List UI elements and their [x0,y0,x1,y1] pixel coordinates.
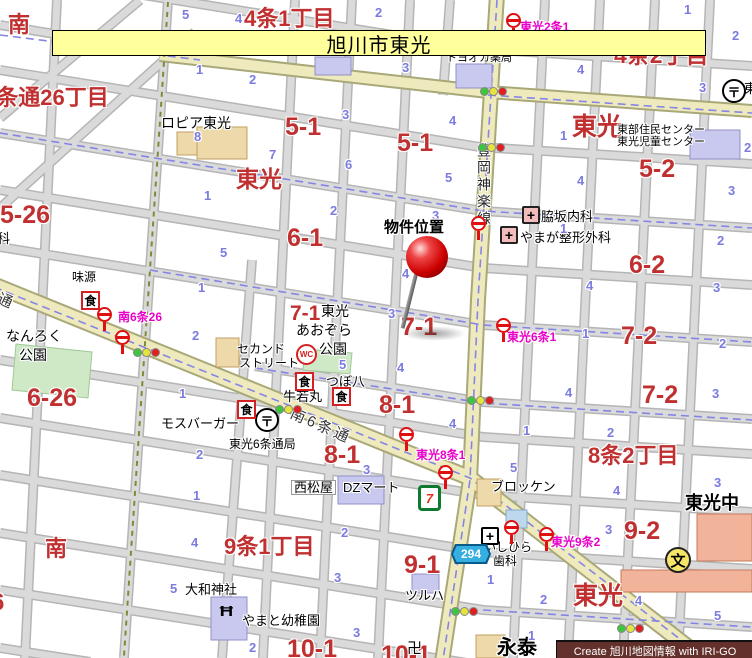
bus-stop-icon [399,427,414,451]
restaurant-icon: 食 [81,291,100,310]
lot-number: 3 [388,307,395,320]
bus-stop-icon [438,465,453,489]
lot-number: 5 [510,461,517,474]
lot-number: 3 [728,184,735,197]
place-label: 西松屋 [291,480,336,495]
route-294-shield: 294 [451,544,491,564]
lot-number: 2 [192,329,199,342]
place-label: 卍 [407,641,422,656]
area-label: 6-1 [287,226,323,251]
area-label: 南 [45,538,67,560]
lot-number: 3 [714,476,721,489]
place-label: モスバーガー [161,417,239,430]
lot-number: 4 [565,386,572,399]
area-label: 9-2 [624,519,660,544]
dental-clinic-icon: + [481,527,499,545]
lot-number: 1 [582,327,589,340]
place-label: 味源 [72,271,96,283]
place-label: 東光 [321,304,349,318]
lot-number: 3 [712,387,719,400]
lot-number: 4 [577,63,584,76]
lot-number: 1 [193,489,200,502]
area-label: 9-1 [404,553,440,578]
lot-number: 3 [713,281,720,294]
place-label: ロピア東光 [161,116,231,130]
lot-number: 1 [487,573,494,586]
lot-number: 1 [204,189,211,202]
post-office-icon: 〒 [255,408,279,432]
lot-number: 1 [560,129,567,142]
lot-number: 5 [182,8,189,21]
bus-stop-icon [97,307,112,331]
lot-number: 8 [194,130,201,143]
area-label: 東光 [236,168,282,191]
lot-number: 6 [345,158,352,171]
bus-stop-icon [471,216,486,240]
lot-number: 1 [684,3,691,16]
lot-number: 5 [339,358,346,371]
place-label: ツルハ [405,589,444,602]
area-label: 東光 [572,115,622,140]
lot-number: 1 [528,629,535,642]
lot-number: 2 [717,234,724,247]
area-label: 南 [8,14,30,36]
traffic-signal-icon [467,396,494,405]
lot-number: 3 [605,523,612,536]
lot-number: 3 [342,108,349,121]
school-icon: 文 [665,547,691,573]
place-label: 大和神社 [185,583,237,596]
area-label: 東光 [573,584,623,609]
lot-number: 4 [235,12,242,25]
lot-number: 2 [330,204,337,217]
place-label: ブロッケン [491,480,556,493]
bus-stop-label: 東光8条1 [416,449,465,461]
bus-stop-icon [504,520,519,544]
place-label: 公園 [19,348,47,362]
lot-number: 5 [170,582,177,595]
lot-number: 4 [397,361,404,374]
area-label: 6 [0,591,4,615]
place-label: 公園 [319,342,347,356]
lot-number: 2 [744,141,751,154]
lot-number: 2 [732,29,739,42]
convenience-store-icon: 7 [418,485,441,511]
lot-number: 1 [523,424,530,437]
marker-label: 物件位置 [384,216,444,237]
area-label: 5-1 [285,115,321,140]
lot-number: 7 [269,148,276,161]
place-label: 東光中 [685,494,739,512]
traffic-signal-icon [617,624,644,633]
area-label: 9条1丁目 [224,536,314,558]
area-label: 4条通26丁目 [0,87,109,109]
lot-number: 4 [449,417,456,430]
map-credit: Create 旭川地図情報 with IRI-GO [556,640,752,658]
bus-stop-label: 南6条26 [118,311,162,323]
place-label: 東光児童センター [617,137,705,148]
traffic-signal-icon [480,87,507,96]
toilet-icon: WC [296,344,317,365]
shrine-icon: Ħ [220,603,234,620]
lot-number: 1 [198,281,205,294]
lot-number: 2 [719,337,726,350]
area-label: 5-26 [0,203,50,228]
area-label: 8-1 [324,443,360,468]
bus-stop-label: 東光6条1 [507,331,556,343]
area-label: 10-1 [287,637,337,658]
lot-number: 2 [607,426,614,439]
restaurant-icon: 食 [237,400,256,419]
lot-number: 4 [613,484,620,497]
area-label: 8条2丁目 [588,445,678,467]
lot-number: 3 [699,81,706,94]
lot-number: 5 [220,246,227,259]
bus-stop-icon [539,527,554,551]
lot-number: 4 [577,174,584,187]
lot-number: 3 [363,463,370,476]
area-label: 7-2 [642,383,678,408]
place-label: 東光6条通局 [229,438,296,450]
lot-number: 2 [249,641,256,654]
lot-number: 2 [196,448,203,461]
lot-number: 3 [353,626,360,639]
lot-number: 5 [445,171,452,184]
place-label: なんろく [6,329,62,343]
lot-number: 2 [249,73,256,86]
place-label: 歯科 [493,555,517,567]
place-label: セカンド [237,343,285,355]
map-canvas[interactable]: 南4条1丁目4条2丁目4条通26丁目5-26東光東光5-15-15-26-16-… [0,0,752,658]
hospital-icon: + [500,226,518,244]
traffic-signal-icon [451,607,478,616]
lot-number: 4 [635,594,642,607]
hospital-icon: + [522,206,540,224]
area-label: 4条1丁目 [244,8,334,30]
place-label: 東部住民センター [617,125,705,136]
area-label: 7-2 [621,324,657,349]
area-label: 5-1 [397,131,433,156]
lot-number: 1 [179,387,186,400]
post-office-icon: 〒 [722,79,746,103]
lot-number: 3 [402,61,409,74]
area-label: 5-2 [639,157,675,182]
area-label: 6-2 [629,253,665,278]
marker-shadow [402,326,466,341]
place-label: 牛若丸 [283,390,322,403]
title-banner: 旭川市東光 [52,30,706,56]
bus-stop-icon [496,318,511,342]
area-label: 8-1 [379,393,415,418]
traffic-signal-icon [275,405,302,414]
place-label: DZマート [343,481,399,494]
bus-stop-label: 東光9条2 [551,536,600,548]
traffic-signal-icon [478,143,505,152]
restaurant-icon: 食 [295,372,314,391]
place-label: あおぞら [296,323,352,337]
lot-number: 3 [334,571,341,584]
lot-number: 5 [714,609,721,622]
lot-number: 1 [560,222,567,235]
lot-number: 4 [449,114,456,127]
place-label: ストリート [239,357,299,369]
lot-number: 2 [341,526,348,539]
lot-number: 4 [402,267,409,280]
bus-stop-icon [115,330,130,354]
place-label: やまと幼稚園 [242,614,320,627]
traffic-signal-icon [133,348,160,357]
area-label: 6-26 [27,386,77,411]
lot-number: 4 [191,536,198,549]
area-label: 7-1 [290,303,320,324]
lot-number: 4 [586,279,593,292]
restaurant-icon: 食 [332,387,351,406]
lot-number: 1 [196,63,203,76]
lot-number: 2 [540,593,547,606]
lot-number: 2 [375,6,382,19]
marker-pin[interactable] [406,236,448,278]
place-label: 科 [0,232,10,245]
